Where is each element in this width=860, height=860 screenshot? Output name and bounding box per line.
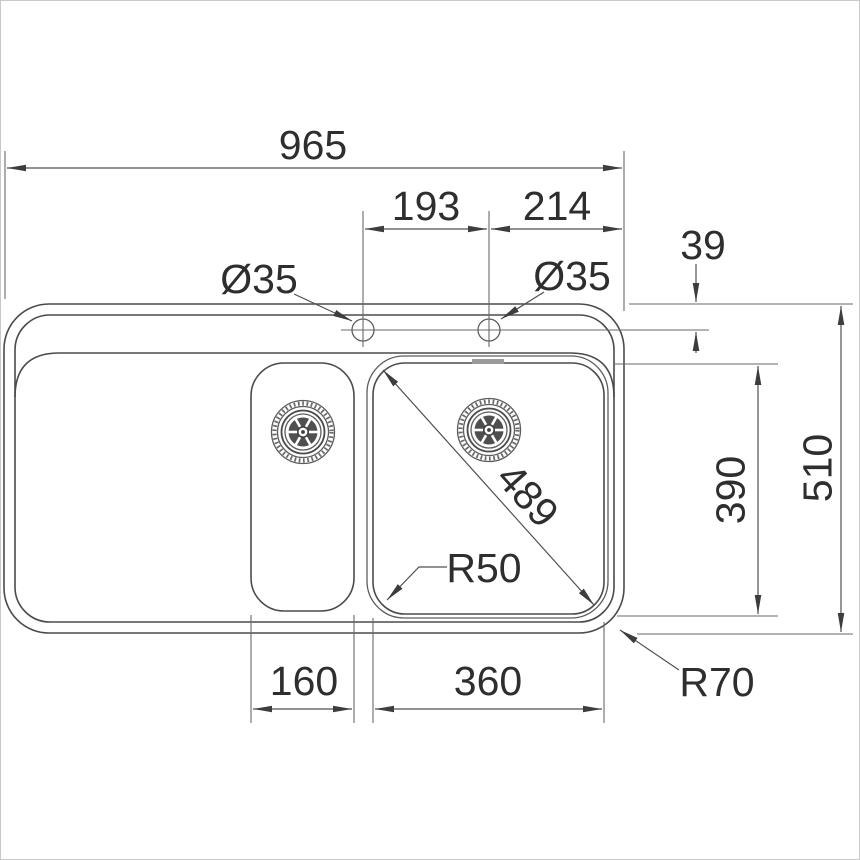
dim-label-tap-hole-right: Ø35 — [533, 253, 611, 299]
dim-label-overall-width: 965 — [279, 122, 347, 168]
dim-small-bowl-width: 160 — [251, 615, 354, 723]
main-bowl-drain-icon — [458, 399, 521, 462]
callout-outer-corner-radius: R70 — [620, 630, 755, 705]
dim-tap-spacing-left: 193 — [363, 183, 489, 347]
dim-label-bowl-diagonal: 489 — [488, 454, 568, 536]
dim-label-small-bowl-width: 160 — [270, 658, 338, 704]
dim-tap-centerline-inset: 39 — [680, 222, 726, 353]
dim-label-tap-spacing-right: 214 — [523, 183, 591, 229]
callout-tap-hole-left: Ø35 — [220, 256, 352, 321]
dim-label-bowl-corner-radius: R50 — [446, 545, 521, 591]
dim-label-overall-depth: 510 — [794, 434, 840, 502]
dim-label-tap-spacing-left: 193 — [392, 183, 460, 229]
dim-label-main-bowl-width: 360 — [454, 658, 522, 704]
dim-label-bowl-depth: 390 — [707, 456, 753, 524]
dim-label-tap-centerline-inset: 39 — [680, 222, 726, 268]
callout-bowl-corner-radius: R50 — [387, 545, 522, 600]
overflow-mark — [472, 359, 504, 364]
dim-label-tap-hole-left: Ø35 — [220, 256, 298, 302]
sink-technical-drawing-page: 965 193 214 Ø35 Ø35 39 510 390 489 — [0, 0, 860, 860]
small-bowl — [251, 363, 354, 611]
small-bowl-drain-icon — [272, 401, 335, 464]
tap-holes — [341, 319, 709, 341]
callout-tap-hole-right: Ø35 — [501, 253, 611, 319]
dim-tap-spacing-right: 214 — [491, 183, 622, 229]
sink-technical-drawing: 965 193 214 Ø35 Ø35 39 510 390 489 — [1, 1, 860, 860]
dim-bowl-depth: 390 — [614, 364, 778, 616]
dim-label-outer-corner-radius: R70 — [679, 659, 754, 705]
